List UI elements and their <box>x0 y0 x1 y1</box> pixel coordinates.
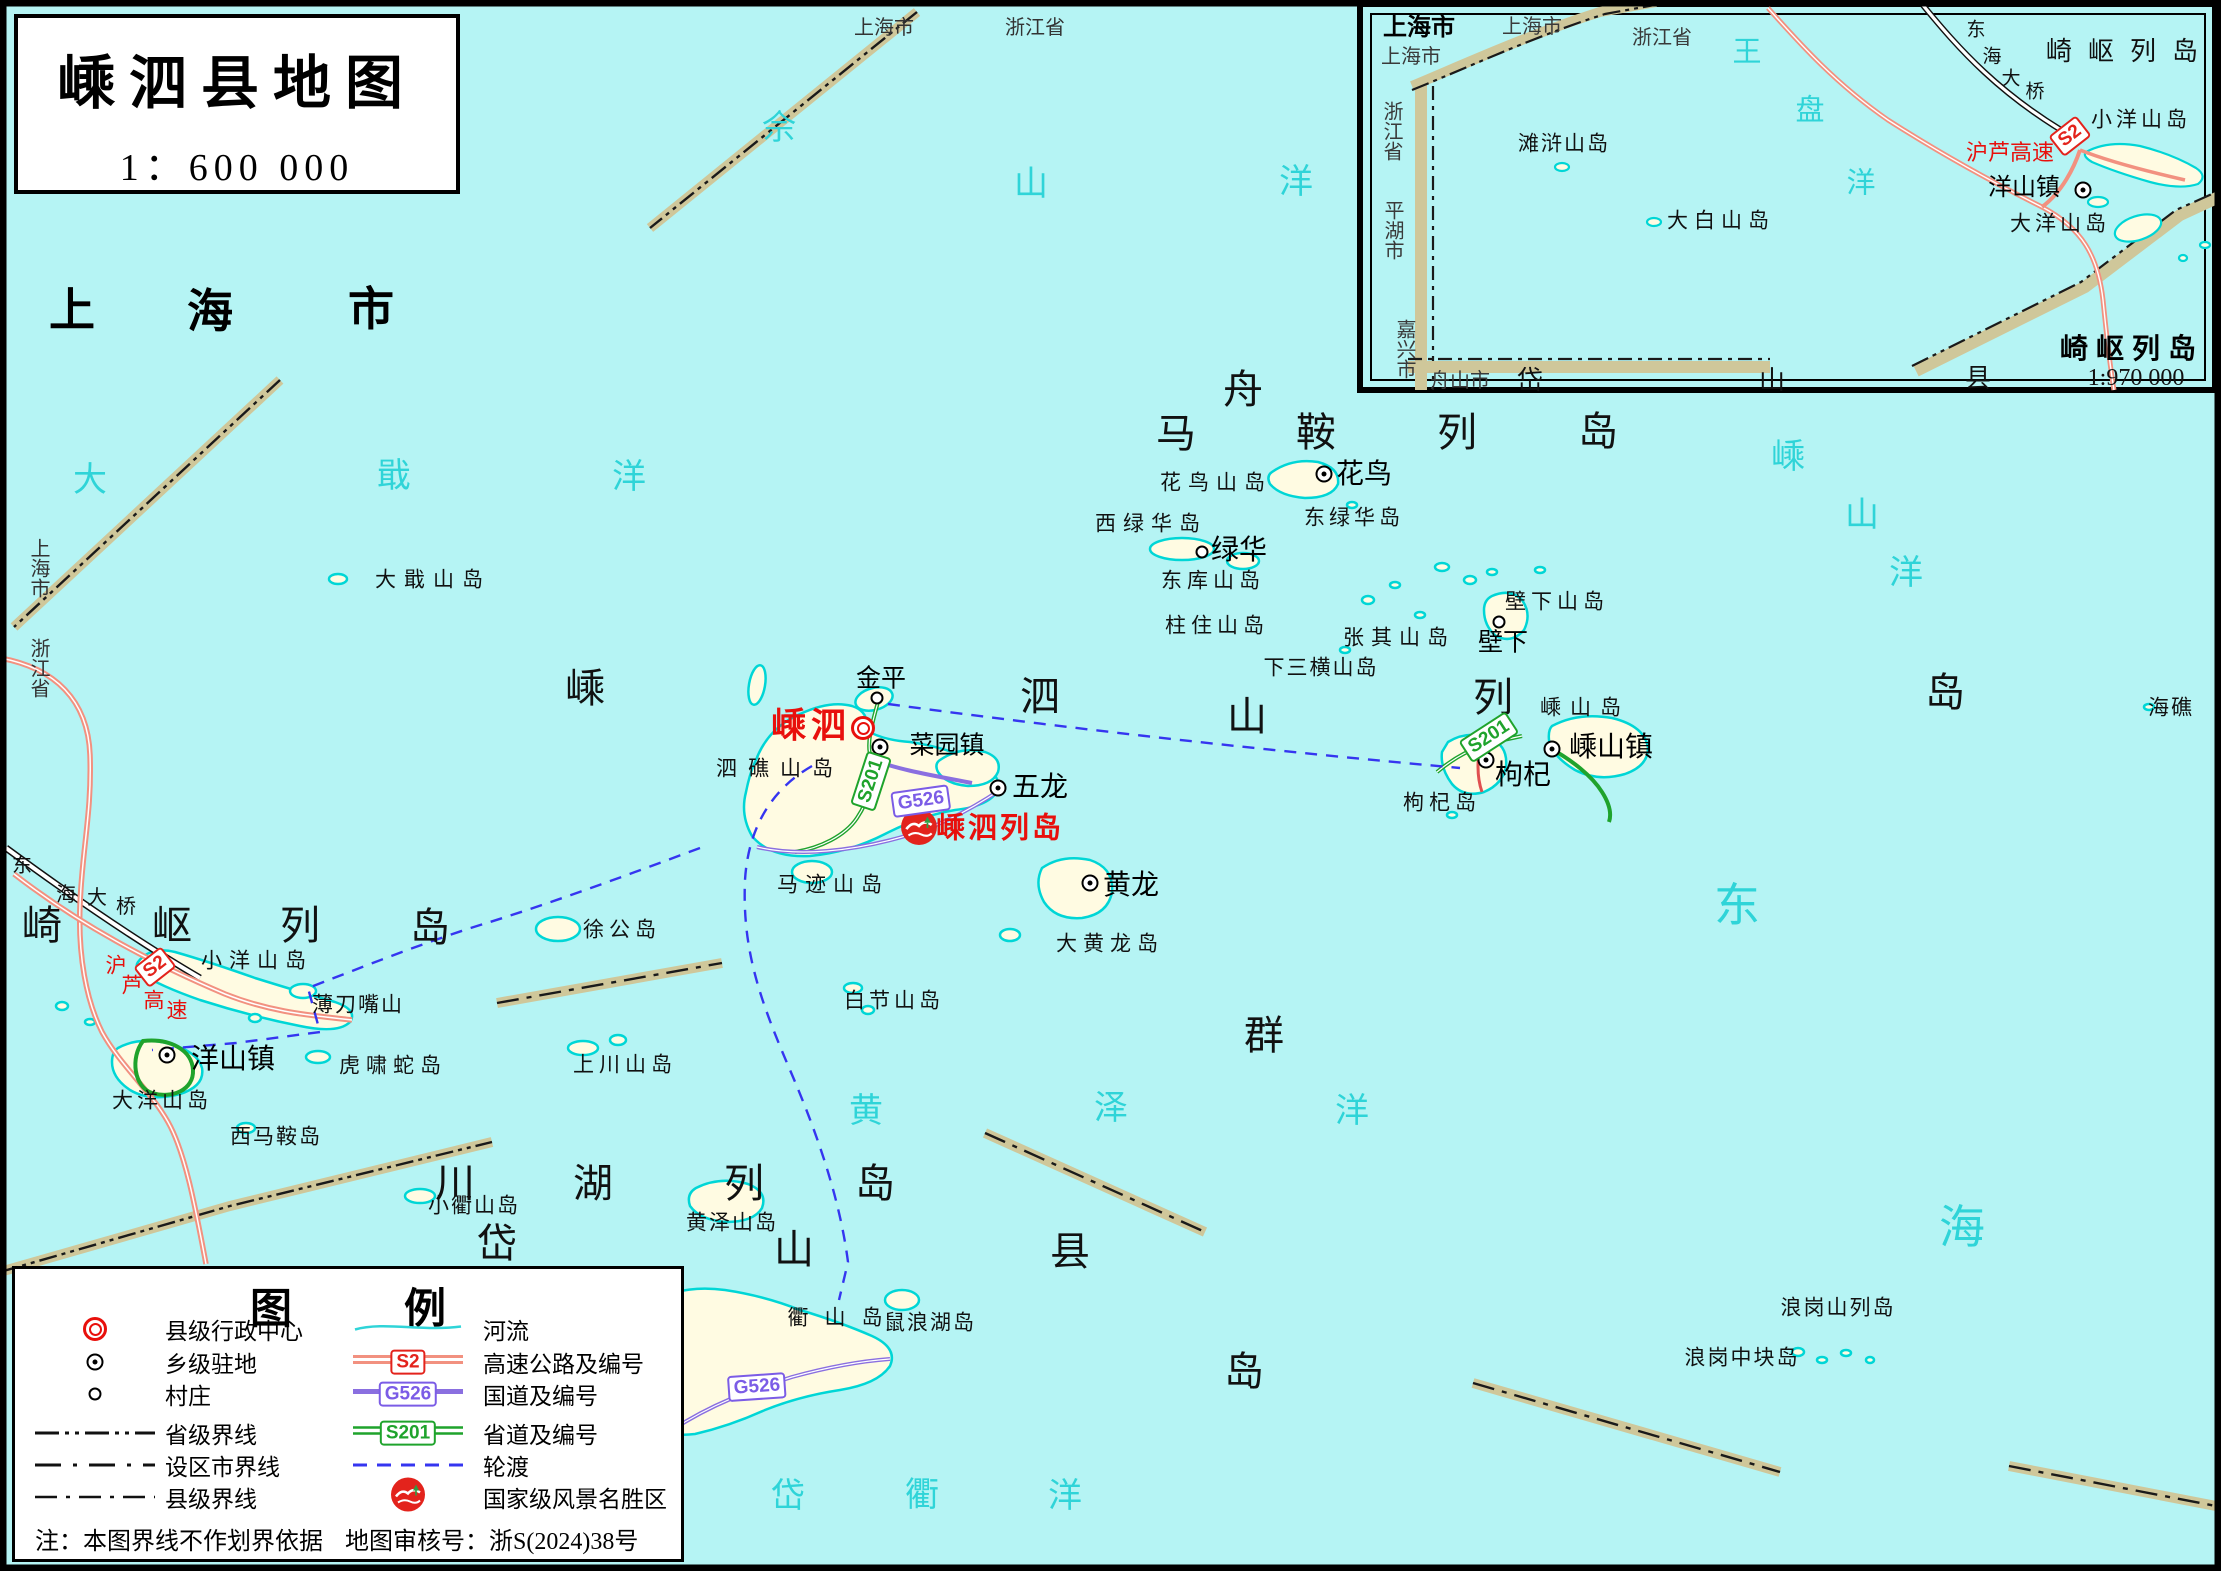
provincial-road-symbol: S201 <box>353 1424 463 1443</box>
map-label: 洋 <box>1846 170 1875 199</box>
map-label: 嵊泗列岛 <box>936 815 1064 844</box>
map-label: 东库山岛 <box>1161 571 1265 592</box>
map-label: 马 <box>1156 414 1196 454</box>
map-label: 小衢山岛 <box>428 1196 520 1217</box>
road-badge: S2 <box>2048 115 2092 157</box>
legend-label: 县级界线 <box>165 1480 257 1514</box>
map-label: 岛 <box>1925 673 1965 713</box>
map-label: 列 <box>1437 413 1477 453</box>
scenic-area-symbol <box>390 1477 426 1518</box>
map-label: 岛 <box>1224 1352 1264 1392</box>
map-label: 东 <box>12 856 32 876</box>
legend-label: 省道及编号 <box>483 1416 598 1450</box>
map-label: 市 <box>348 286 394 332</box>
map-label: 盘 <box>1795 97 1824 126</box>
map-label: 泗礁山岛 <box>716 759 844 780</box>
map-label: 浙江省 <box>1005 18 1065 38</box>
map-label: 虎啸蛇岛 <box>339 1056 447 1077</box>
map-label: 嵊山岛 <box>1540 698 1630 719</box>
ferry-symbol <box>353 1456 463 1474</box>
map-label: 县 <box>1965 366 1991 392</box>
map-label: 黄泽山岛 <box>686 1213 778 1234</box>
map-label: 崎 <box>22 906 62 946</box>
town-marker <box>1316 466 1333 483</box>
map-label: 湖 <box>573 1164 613 1204</box>
map-label: 东 <box>1714 883 1760 929</box>
legend-label: 乡级驻地 <box>165 1345 257 1379</box>
map-label: 海 <box>56 885 76 905</box>
map-label: 山 <box>774 1230 814 1270</box>
map-label: 上海市 <box>1502 17 1562 37</box>
map-label: 戢 <box>377 460 411 494</box>
village-marker <box>871 692 884 705</box>
map-label: 黄龙 <box>1103 872 1159 900</box>
boundary-disclaimer: 注：本图界线不作划界依据 <box>35 1529 323 1555</box>
legend-label: 国家级风景名胜区 <box>483 1480 667 1514</box>
map-label: 大洋山岛 <box>2010 214 2110 235</box>
map-label: 上海市 <box>854 18 914 38</box>
map-label: 小洋山岛 <box>201 951 313 972</box>
legend-box: 图例 县级行政中心 河流 乡级驻地 S2 高速公路及编号 村庄 G526 国道及… <box>12 1266 684 1562</box>
map-label: 小洋山岛 <box>2091 110 2191 131</box>
map-canvas: 上海市上海市浙江省上海市浙江省佘山洋大戢洋嵊山洋黄泽洋岱衢洋东海崎岖列岛马鞍列岛… <box>0 0 2221 1571</box>
map-label: 岱 <box>771 1480 805 1514</box>
map-label: 花鸟山岛 <box>1160 473 1272 494</box>
map-label: 泗 <box>1020 677 1060 717</box>
map-label: 列 <box>1473 678 1513 718</box>
map-label: 壁下山岛 <box>1505 592 1609 613</box>
map-label: 洋山镇 <box>191 1046 275 1074</box>
map-label: 浪岗山列岛 <box>1781 1298 1896 1319</box>
map-label: 菜园镇 <box>909 734 984 759</box>
map-label: 上海市 <box>1383 16 1455 40</box>
map-label: 枸杞 <box>1495 762 1551 790</box>
map-label: 崎岖列岛 <box>2060 335 2204 363</box>
town-marker <box>990 780 1007 797</box>
map-label: 平湖市 <box>1382 200 1402 260</box>
map-label: 列 <box>724 1164 764 1204</box>
map-label: 崎岖列岛 <box>2046 39 2214 65</box>
map-label: 上海市 <box>1381 47 1441 67</box>
map-label: 山 <box>1227 697 1267 737</box>
town-marker <box>1544 741 1561 758</box>
county-marker <box>851 716 875 740</box>
map-label: 上川山岛 <box>573 1055 677 1076</box>
map-label: 东 <box>1966 21 1985 40</box>
map-label: 芦 <box>122 976 143 997</box>
map-label: 海 <box>1939 1205 1985 1251</box>
town-marker <box>2075 182 2092 199</box>
map-label: 嵊山镇 <box>1569 734 1653 762</box>
map-label: 1:970 000 <box>2088 366 2185 390</box>
map-label: 佘 <box>762 112 796 146</box>
map-label: 衢 <box>905 1479 939 1513</box>
map-label: 王 <box>1732 39 1761 68</box>
map-label: 海 <box>187 288 233 334</box>
s2-badge: S2 <box>390 1349 425 1375</box>
title-box: 嵊泗县地图 1：600 000 <box>14 14 460 194</box>
town-marker <box>159 1047 176 1064</box>
map-label: 岛 <box>1578 412 1618 452</box>
map-label: 岛 <box>855 1164 895 1204</box>
legend-note: 注：本图界线不作划界依据地图审核号：浙S(2024)38号 <box>35 1521 660 1556</box>
map-label: 岖 <box>152 906 192 946</box>
map-label: 浪岗中块岛 <box>1685 1348 1800 1369</box>
village-symbol <box>89 1388 102 1401</box>
map-label: 洋山镇 <box>1988 176 2060 200</box>
county-center-symbol <box>83 1317 107 1341</box>
map-label: 枸杞岛 <box>1403 793 1481 814</box>
road-badge: G526 <box>727 1372 787 1402</box>
map-approval-number: 地图审核号：浙S(2024)38号 <box>345 1529 638 1555</box>
map-label: 岱 <box>477 1224 517 1264</box>
map-label: 花鸟 <box>1336 461 1392 489</box>
map-label: 群 <box>1244 1016 1284 1056</box>
map-label: 山 <box>1759 368 1785 394</box>
map-label: 列 <box>280 906 320 946</box>
s201-badge: S201 <box>380 1420 436 1446</box>
map-label: 金平 <box>856 667 906 692</box>
road-badge: S201 <box>850 750 892 812</box>
map-label: 徐公岛 <box>583 920 661 941</box>
map-label: 衢山岛 <box>788 1308 899 1329</box>
legend-label: 河流 <box>483 1312 529 1346</box>
river-symbol <box>353 1319 463 1340</box>
map-label: 上海市 <box>28 538 48 598</box>
map-label: 嘉兴市 <box>1394 319 1414 379</box>
map-label: 山 <box>1845 499 1879 533</box>
village-marker <box>1196 546 1209 559</box>
county-boundary-symbol <box>35 1488 155 1506</box>
village-marker <box>1493 616 1506 629</box>
map-label: 绿华 <box>1211 537 1267 565</box>
map-label: 洋 <box>612 461 646 495</box>
expressway-symbol: S2 <box>353 1353 463 1372</box>
map-label: 滩浒山岛 <box>1518 134 1610 155</box>
map-label: 大白山岛 <box>1667 211 1775 232</box>
map-label: 五龙 <box>1012 774 1068 802</box>
map-label: 黄 <box>849 1095 883 1129</box>
map-label: 柱住山岛 <box>1165 616 1269 637</box>
map-label: 上 <box>49 287 95 333</box>
map-label: 大 <box>73 464 107 498</box>
map-label: 洋 <box>1279 166 1313 200</box>
map-label: 嵊 <box>1771 441 1805 475</box>
legend-title: 图例 <box>15 1275 681 1336</box>
map-label: 洋 <box>1335 1095 1369 1129</box>
township-symbol <box>87 1354 104 1371</box>
city-boundary-symbol <box>35 1456 155 1474</box>
map-scale: 1：600 000 <box>18 136 456 191</box>
map-label: 桥 <box>116 897 136 917</box>
legend-label: 国道及编号 <box>483 1377 598 1411</box>
map-label: 浙江省 <box>1632 28 1692 48</box>
town-marker <box>1082 875 1099 892</box>
map-label: 壁下 <box>1478 631 1528 656</box>
map-label: 海 <box>1982 48 2001 67</box>
map-label: 薄刀嘴山 <box>312 995 404 1016</box>
map-label: 西马鞍岛 <box>230 1127 322 1148</box>
map-label: 西绿华岛 <box>1095 514 1207 535</box>
legend-label: 轮渡 <box>483 1448 529 1482</box>
legend-label: 村庄 <box>165 1377 211 1411</box>
map-label: 大戢山岛 <box>375 570 491 591</box>
legend-label: 省级界线 <box>165 1416 257 1450</box>
map-label: 浙江省 <box>1381 101 1401 161</box>
map-label: 白节山岛 <box>844 991 944 1012</box>
map-label: 泽 <box>1094 1092 1128 1126</box>
province-boundary-symbol <box>35 1424 155 1442</box>
map-label: 岛 <box>410 908 450 948</box>
map-label: 下三横山岛 <box>1264 658 1379 679</box>
map-label: 嵊泗 <box>771 709 851 744</box>
map-label: 岱 <box>1517 368 1543 394</box>
legend-label: 县级行政中心 <box>165 1312 303 1346</box>
national-road-symbol: G526 <box>353 1385 463 1404</box>
map-label: 张其山岛 <box>1343 628 1455 649</box>
map-label: 浙江省 <box>28 638 48 698</box>
map-label: 马迹山岛 <box>777 875 889 896</box>
map-label: 县 <box>1050 1232 1090 1272</box>
map-label: 洋 <box>1048 1480 1082 1514</box>
map-label: 山 <box>1014 168 1048 202</box>
map-label: 高 <box>144 991 165 1012</box>
map-title: 嵊泗县地图 <box>18 36 456 120</box>
map-label: 舟 <box>1223 370 1263 410</box>
g526-badge: G526 <box>379 1381 437 1407</box>
legend-label: 高速公路及编号 <box>483 1345 644 1379</box>
legend-label: 设区市界线 <box>165 1448 280 1482</box>
map-label: 洋 <box>1889 557 1923 591</box>
map-label: 海礁 <box>2148 698 2194 719</box>
map-label: 嵊 <box>565 669 605 709</box>
map-label: 大黄龙岛 <box>1056 934 1164 955</box>
map-label: 东绿华岛 <box>1304 508 1404 529</box>
map-label: 舟山市 <box>1430 371 1490 391</box>
map-label: 速 <box>167 1001 188 1022</box>
map-label: 大 <box>2001 70 2020 89</box>
map-label: 桥 <box>2025 83 2044 102</box>
map-label: 大 <box>87 888 107 908</box>
map-label: 沪芦高速 <box>1966 142 2054 164</box>
map-label: 大洋山岛 <box>112 1091 212 1112</box>
map-label: 鞍 <box>1296 413 1336 453</box>
